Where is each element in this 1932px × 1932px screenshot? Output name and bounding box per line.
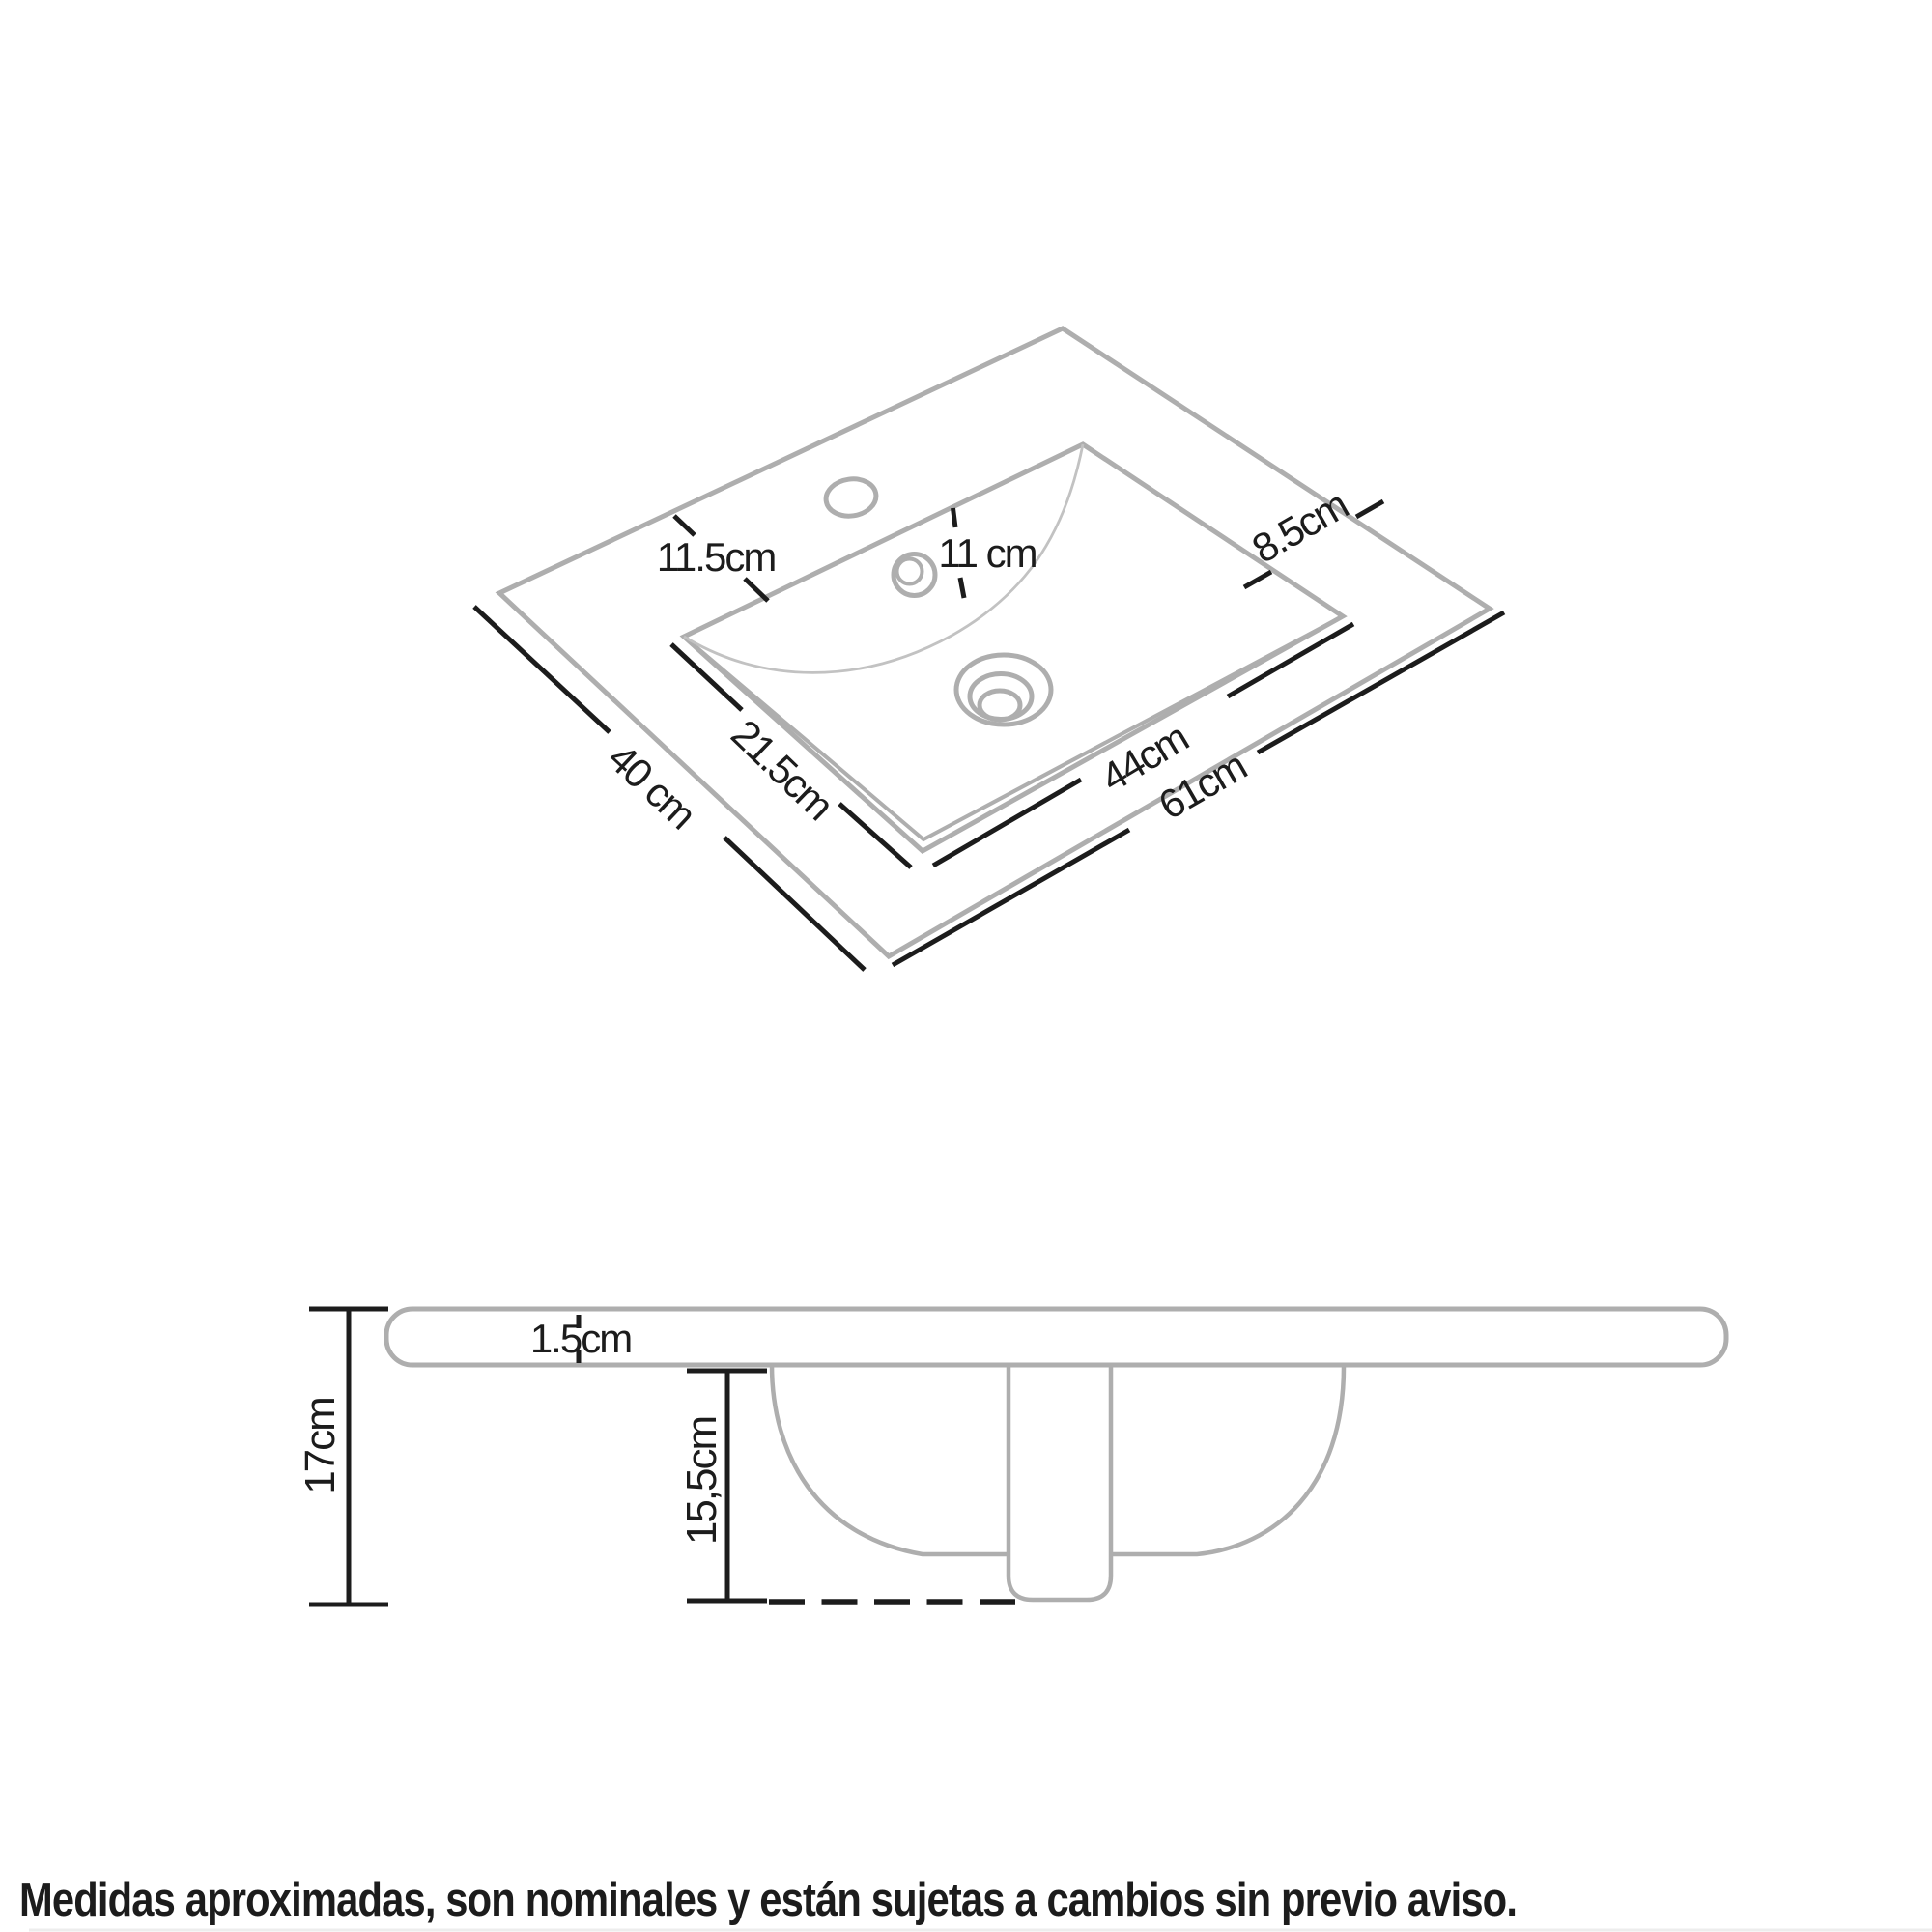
svg-text:15,5cm: 15,5cm [678,1417,725,1545]
svg-text:17cm: 17cm [297,1398,344,1494]
svg-text:1.5cm: 1.5cm [530,1316,631,1361]
svg-text:Medidas aproximadas, son nomin: Medidas aproximadas, son nominales y est… [19,1873,1517,1926]
svg-text:11 cm: 11 cm [938,530,1036,576]
svg-text:11.5cm: 11.5cm [657,534,776,580]
